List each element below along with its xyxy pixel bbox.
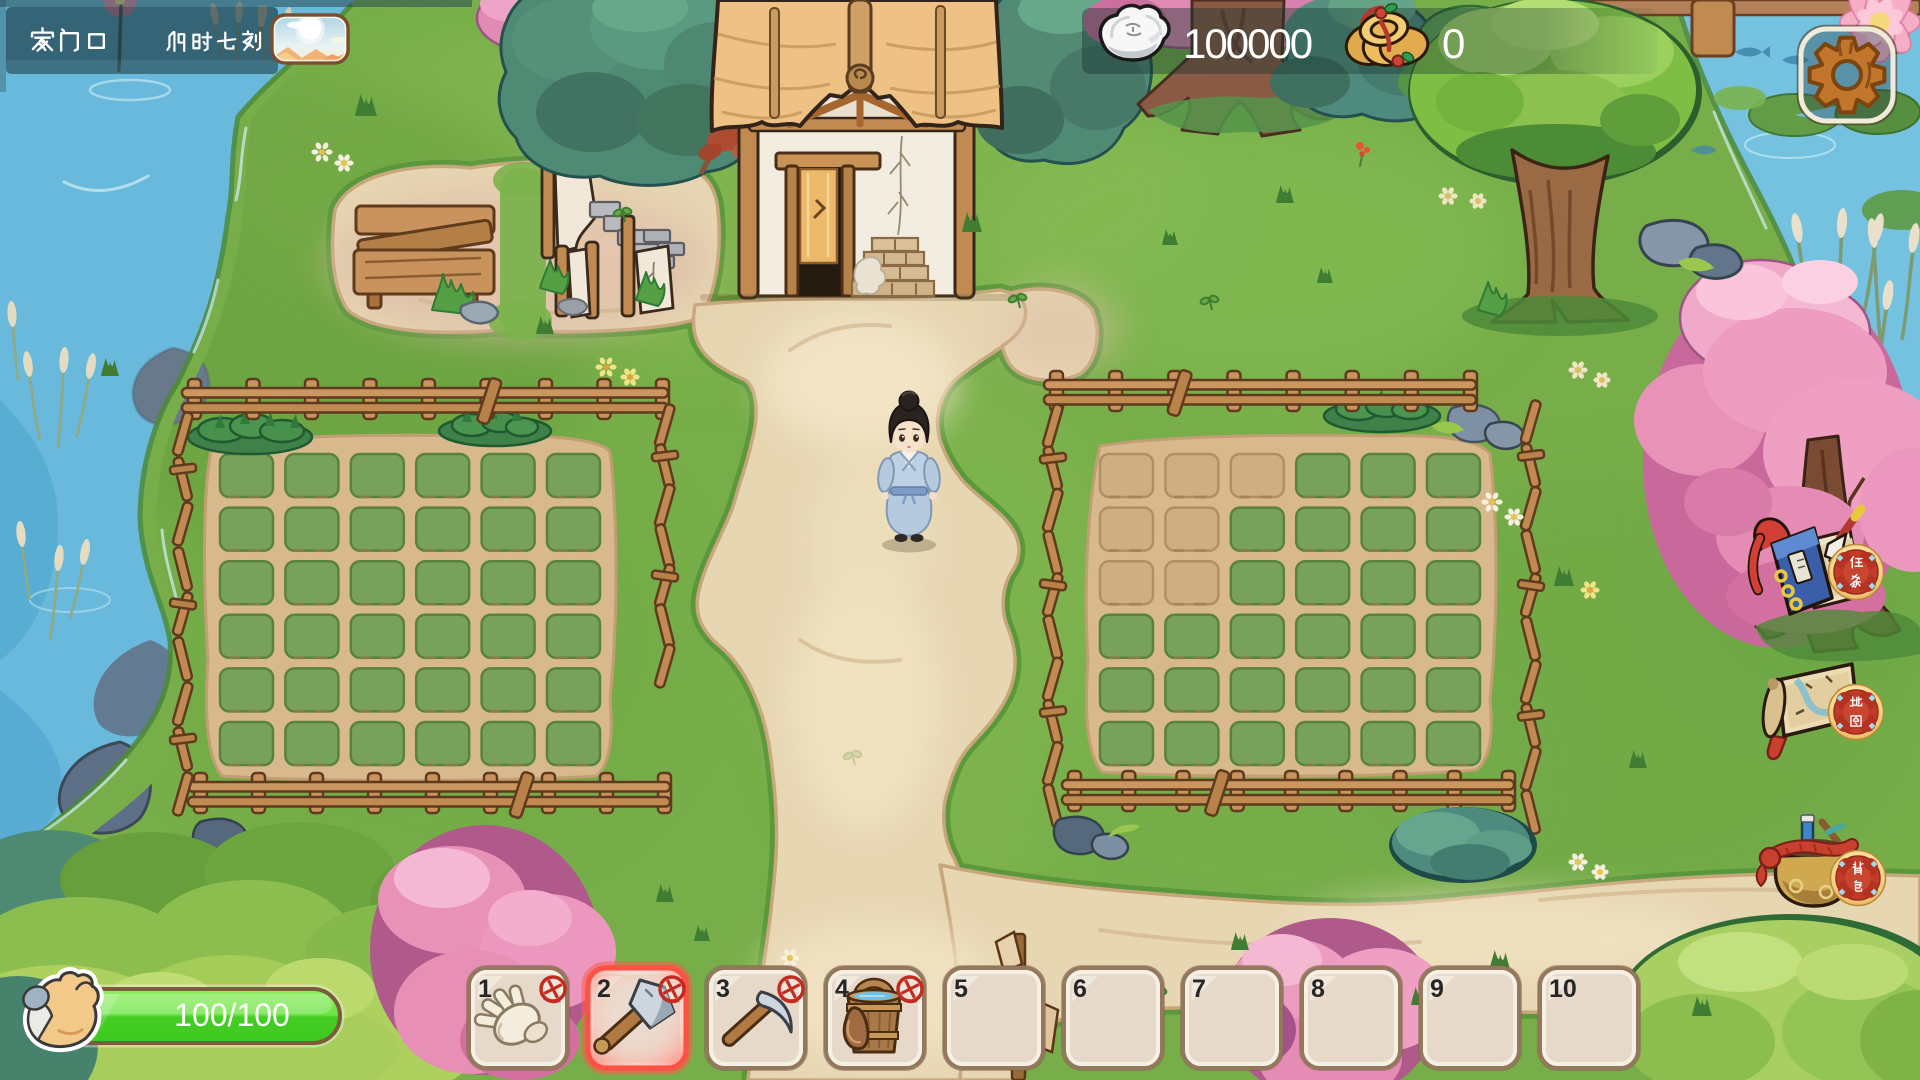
svg-text:4: 4 [835, 975, 849, 1003]
svg-text:8: 8 [1311, 975, 1325, 1003]
svg-text:9: 9 [1430, 975, 1444, 1003]
svg-text:7: 7 [1192, 975, 1206, 1003]
svg-text:0: 0 [1442, 20, 1465, 67]
svg-text:10: 10 [1549, 975, 1577, 1003]
svg-text:100/100: 100/100 [174, 997, 290, 1033]
svg-text:5: 5 [954, 975, 968, 1003]
svg-text:6: 6 [1073, 975, 1087, 1003]
svg-text:1: 1 [478, 975, 492, 1003]
svg-text:3: 3 [716, 975, 730, 1003]
svg-text:2: 2 [597, 975, 611, 1003]
svg-text:100000: 100000 [1183, 20, 1312, 67]
